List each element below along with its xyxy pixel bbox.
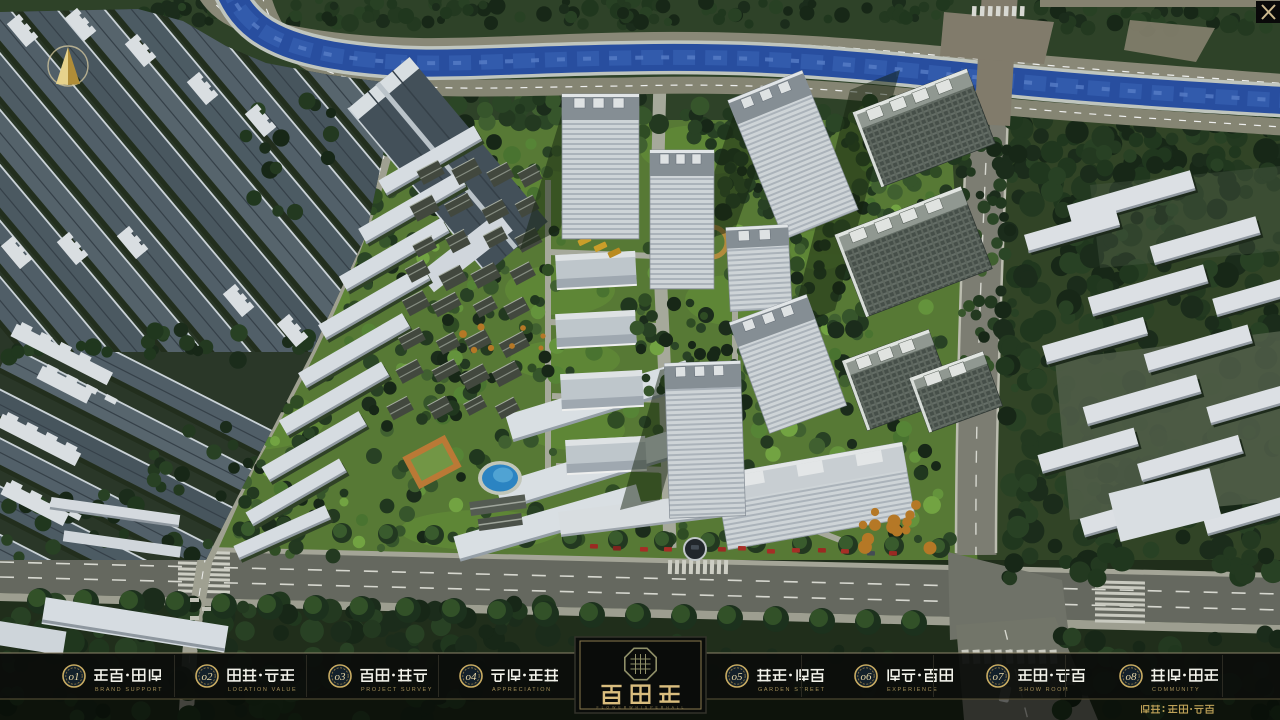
svg-text:BRAND SUPPORT: BRAND SUPPORT <box>95 687 163 693</box>
svg-text:o3: o3 <box>335 671 347 683</box>
svg-text:o4: o4 <box>466 671 478 683</box>
svg-text:o2: o2 <box>202 671 214 683</box>
svg-text:o1: o1 <box>69 671 80 683</box>
svg-text:APPRECIATION: APPRECIATION <box>492 687 552 693</box>
svg-text:EXPERIENCE: EXPERIENCE <box>887 687 938 693</box>
svg-text:LOCATION VALUE: LOCATION VALUE <box>228 687 297 693</box>
svg-text:o8: o8 <box>1126 671 1138 683</box>
svg-text:o5: o5 <box>732 671 744 683</box>
svg-text:SHOW ROOM: SHOW ROOM <box>1019 687 1069 693</box>
svg-text:o7: o7 <box>993 671 1005 683</box>
svg-text:PROJECT SURVEY: PROJECT SURVEY <box>361 687 433 693</box>
svg-text:COMMUNITY: COMMUNITY <box>1152 687 1200 693</box>
svg-text:o6: o6 <box>861 671 873 683</box>
svg-text:F L O W E R W H I S P E R: F L O W E R W H I S P E R H A L L <box>597 706 685 710</box>
svg-text:GARDEN STREET: GARDEN STREET <box>758 687 826 693</box>
